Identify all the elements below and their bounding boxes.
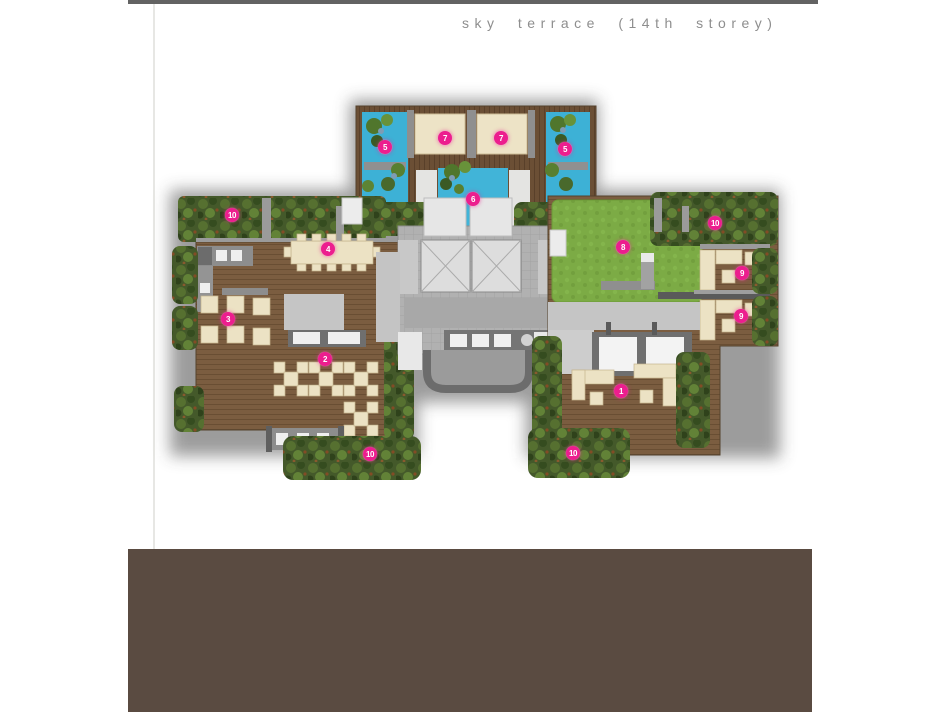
landscape-garden-top-right — [650, 192, 778, 246]
page: sky terrace (14th storey) — [0, 0, 943, 717]
skylight-left — [288, 330, 366, 347]
fitness-mat-right — [477, 114, 527, 154]
landscape-garden-bottom-right — [528, 428, 630, 478]
entertainment-bbq-table — [284, 234, 380, 271]
floor-plan — [0, 0, 943, 540]
core-ramp — [427, 350, 529, 389]
legend-panel: 1City Viewing Gallery/Lounge2Dining cum … — [128, 549, 812, 712]
landscape-garden-bottom-left — [283, 436, 421, 480]
fitness-mat-left — [415, 114, 465, 154]
